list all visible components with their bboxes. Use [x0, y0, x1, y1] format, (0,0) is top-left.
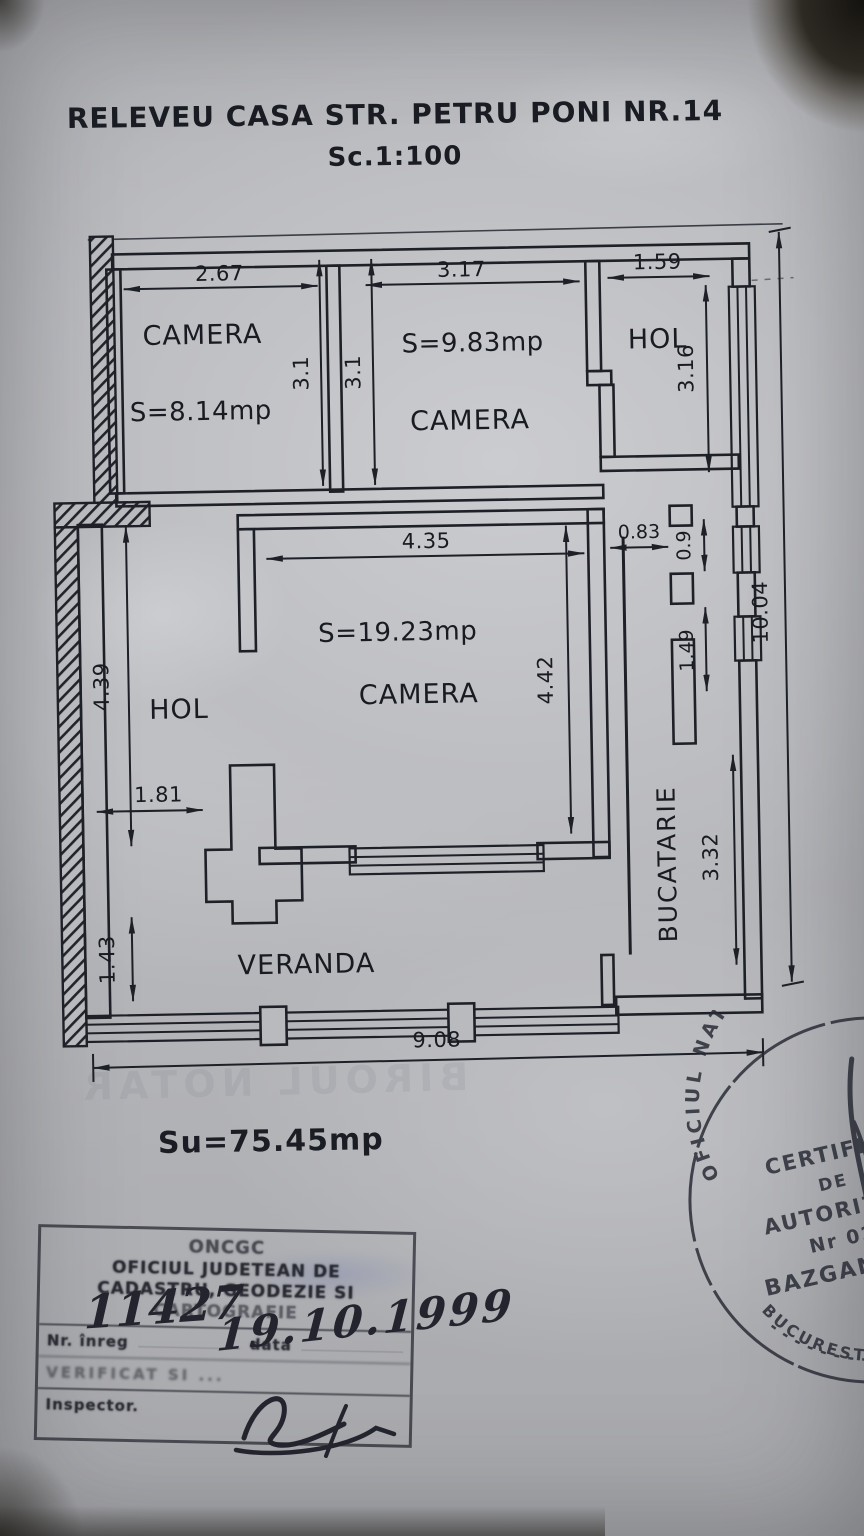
room-camera3-name: CAMERA: [359, 678, 479, 711]
room-hol-top-name: HOL: [628, 323, 688, 355]
dim-h-hol-mid: 4.39: [89, 662, 114, 711]
photo-background-corner: [734, 0, 864, 160]
round-stamp: OFICIUL NATIONAL DE CADASTRU BUCURESTI -…: [620, 1010, 864, 1390]
window-right-top: [729, 286, 759, 506]
cross-pier: [204, 764, 303, 924]
dim-total-height: 10.04: [748, 581, 773, 644]
room-camera1-area: S=8.14mp: [130, 396, 273, 428]
dim-w-camera1: 2.67: [195, 261, 244, 286]
round-stamp-line1: CERTIFICAT: [763, 1122, 864, 1180]
dim-h-camera1: 3.1: [289, 356, 314, 391]
room-bucatarie-name: BUCATARIE: [651, 785, 683, 943]
window-veranda-bottom: [86, 1001, 619, 1048]
window-camera3-bottom: [349, 845, 543, 874]
dim-w-camera2: 3.17: [437, 257, 486, 282]
dim-nook-h1: 0.9: [673, 530, 696, 561]
photo-background-edge: [0, 1506, 605, 1536]
floor-plan-drawing: 2.67 3.17 1.59 3.1 3.1 3.16 4.35 4.42 0.…: [32, 208, 827, 1091]
inspector-signature: [226, 1376, 421, 1466]
dim-h-veranda-left: 1.43: [95, 935, 120, 984]
dim-h-camera3: 4.42: [533, 655, 558, 704]
room-camera3-area: S=19.23mp: [318, 616, 478, 649]
dim-h-camera2: 3.1: [341, 355, 366, 390]
dim-total-width: 9.08: [412, 1028, 461, 1053]
window-right-mid: [733, 526, 760, 572]
room-camera2-area: S=9.83mp: [401, 327, 544, 359]
room-veranda-name: VERANDA: [237, 948, 375, 981]
room-hol-mid-name: HOL: [149, 694, 209, 726]
room-camera1-name: CAMERA: [142, 319, 262, 352]
dim-nook-h2: 1.49: [676, 629, 699, 672]
dim-w-hol-top: 1.59: [633, 250, 682, 275]
dim-nook-w: 0.83: [618, 521, 661, 544]
dim-h-bucatarie: 3.32: [698, 833, 723, 882]
total-usable-area: Su=75.45mp: [158, 1122, 384, 1161]
round-stamp-line2: DE: [817, 1170, 850, 1196]
photo-background-corner: [0, 0, 60, 70]
room-camera2-name: CAMERA: [410, 404, 530, 437]
dim-w-hol-mid: 1.81: [134, 782, 183, 807]
dim-w-camera3: 4.35: [402, 529, 451, 554]
scanned-floorplan-photo: { "document": { "title": "RELEVEU CASA S…: [0, 0, 864, 1536]
